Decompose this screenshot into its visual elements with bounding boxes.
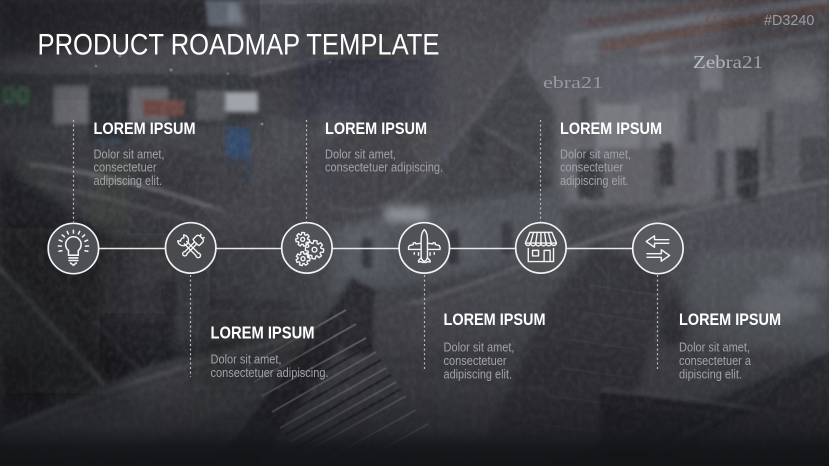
svg-text:consectetuer: consectetuer xyxy=(444,354,507,368)
svg-text:LOREM IPSUM: LOREM IPSUM xyxy=(325,120,427,138)
svg-text:Dolor sit amet,: Dolor sit amet, xyxy=(94,147,165,161)
svg-text:adipiscing elit.: adipiscing elit. xyxy=(94,174,163,188)
svg-text:Dolor sit amet,: Dolor sit amet, xyxy=(211,352,282,366)
svg-text:Dolor sit amet,: Dolor sit amet, xyxy=(444,341,515,355)
svg-text:LOREM IPSUM: LOREM IPSUM xyxy=(560,120,662,138)
svg-text:consectetuer a: consectetuer a xyxy=(679,354,751,368)
svg-text:consectetuer adipiscing.: consectetuer adipiscing. xyxy=(325,161,443,175)
svg-text:LOREM IPSUM: LOREM IPSUM xyxy=(94,120,196,138)
svg-text:PRODUCT ROADMAP TEMPLATE: PRODUCT ROADMAP TEMPLATE xyxy=(38,29,440,61)
svg-text:consectetuer: consectetuer xyxy=(560,161,623,175)
svg-text:#D3240: #D3240 xyxy=(764,13,814,29)
svg-text:LOREM IPSUM: LOREM IPSUM xyxy=(444,311,546,329)
svg-text:adipiscing elit.: adipiscing elit. xyxy=(560,174,629,188)
svg-text:LOREM IPSUM: LOREM IPSUM xyxy=(211,323,315,342)
svg-text:dipiscing elit.: dipiscing elit. xyxy=(679,367,742,381)
svg-text:Dolor sit amet,: Dolor sit amet, xyxy=(325,147,396,161)
svg-text:consectetuer: consectetuer xyxy=(94,161,157,175)
svg-text:Dolor sit amet,: Dolor sit amet, xyxy=(560,147,631,161)
svg-text:Dolor sit amet,: Dolor sit amet, xyxy=(679,341,750,355)
svg-text:LOREM IPSUM: LOREM IPSUM xyxy=(679,311,781,329)
svg-text:consectetuer adipiscing.: consectetuer adipiscing. xyxy=(211,366,329,380)
svg-text:adipiscing elit.: adipiscing elit. xyxy=(444,367,513,381)
